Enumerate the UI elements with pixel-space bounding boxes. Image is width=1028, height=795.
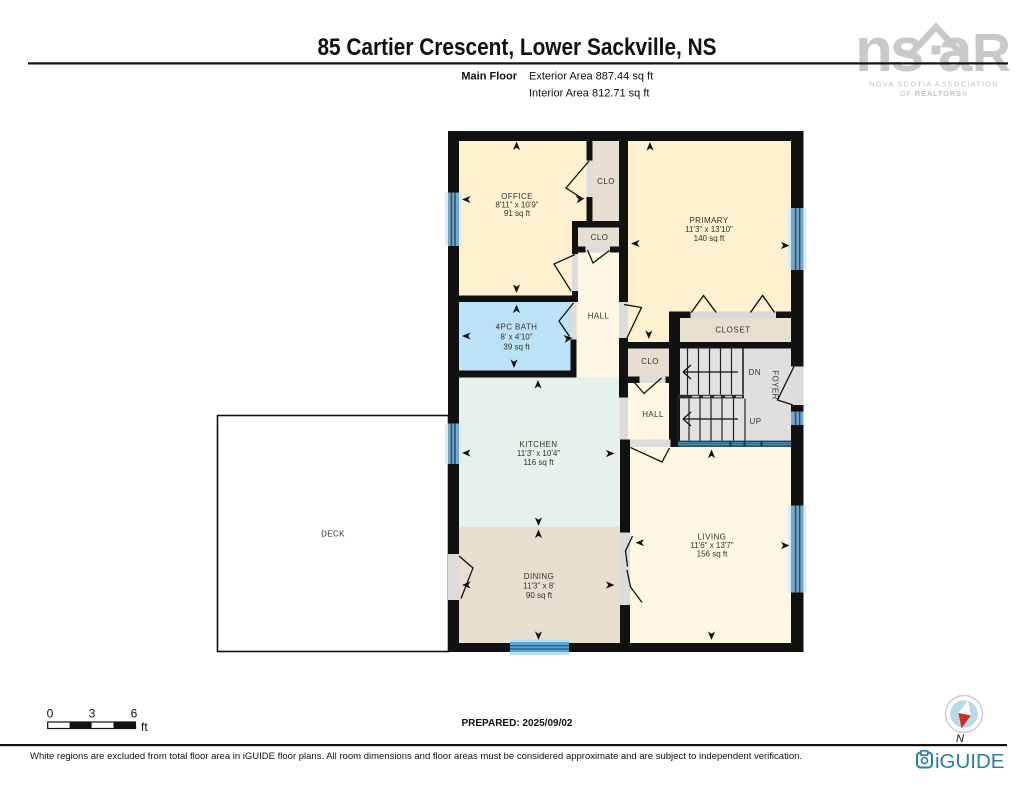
svg-text:ft: ft (141, 720, 148, 734)
svg-text:Main Floor: Main Floor (461, 71, 517, 83)
svg-text:6: 6 (131, 707, 138, 721)
svg-text:DINING: DINING (524, 572, 554, 581)
svg-text:R: R (972, 23, 1011, 83)
svg-text:8' x 4'10": 8' x 4'10" (500, 333, 532, 342)
svg-text:HALL: HALL (642, 410, 664, 419)
svg-text:PREPARED: 2025/09/02: PREPARED: 2025/09/02 (462, 718, 573, 729)
svg-text:90 sq ft: 90 sq ft (526, 591, 553, 600)
svg-text:UP: UP (750, 417, 762, 426)
svg-text:0: 0 (47, 707, 54, 721)
svg-text:NOVA SCOTIA ASSOCIATION: NOVA SCOTIA ASSOCIATION (869, 80, 999, 89)
svg-text:N: N (956, 733, 964, 745)
svg-text:CLO: CLO (591, 233, 609, 242)
svg-text:140 sq ft: 140 sq ft (694, 234, 725, 243)
svg-text:CLO: CLO (641, 357, 659, 366)
svg-text:Exterior Area 887.44 sq ft: Exterior Area 887.44 sq ft (529, 71, 653, 83)
svg-text:11'3" x 10'4": 11'3" x 10'4" (517, 449, 560, 458)
svg-text:11'3" x 8': 11'3" x 8' (523, 582, 555, 591)
svg-text:39 sq ft: 39 sq ft (503, 343, 530, 352)
svg-text:CLO: CLO (597, 177, 615, 186)
svg-text:PRIMARY: PRIMARY (689, 216, 728, 225)
svg-text:OF REALTORS®: OF REALTORS® (900, 89, 968, 98)
svg-text:4PC BATH: 4PC BATH (496, 323, 538, 332)
svg-text:FOYER: FOYER (771, 370, 780, 400)
svg-text:91 sq ft: 91 sq ft (504, 209, 531, 218)
svg-text:156 sq ft: 156 sq ft (697, 550, 728, 559)
svg-text:DECK: DECK (321, 530, 345, 539)
svg-text:HALL: HALL (588, 312, 610, 321)
svg-text:KITCHEN: KITCHEN (520, 440, 558, 449)
svg-text:3: 3 (89, 707, 96, 721)
svg-text:White regions are excluded fro: White regions are excluded from total fl… (30, 751, 802, 762)
svg-text:DN: DN (749, 368, 762, 377)
svg-text:11'3" x 13'10": 11'3" x 13'10" (685, 225, 733, 234)
svg-text:116 sq ft: 116 sq ft (523, 458, 554, 467)
svg-text:85 Cartier Crescent, Lower Sac: 85 Cartier Crescent, Lower Sackville, NS (317, 32, 716, 60)
svg-text:iGUIDE: iGUIDE (935, 750, 1004, 773)
svg-text:Interior Area 812.71 sq ft: Interior Area 812.71 sq ft (529, 88, 649, 100)
svg-text:CLOSET: CLOSET (715, 326, 751, 335)
